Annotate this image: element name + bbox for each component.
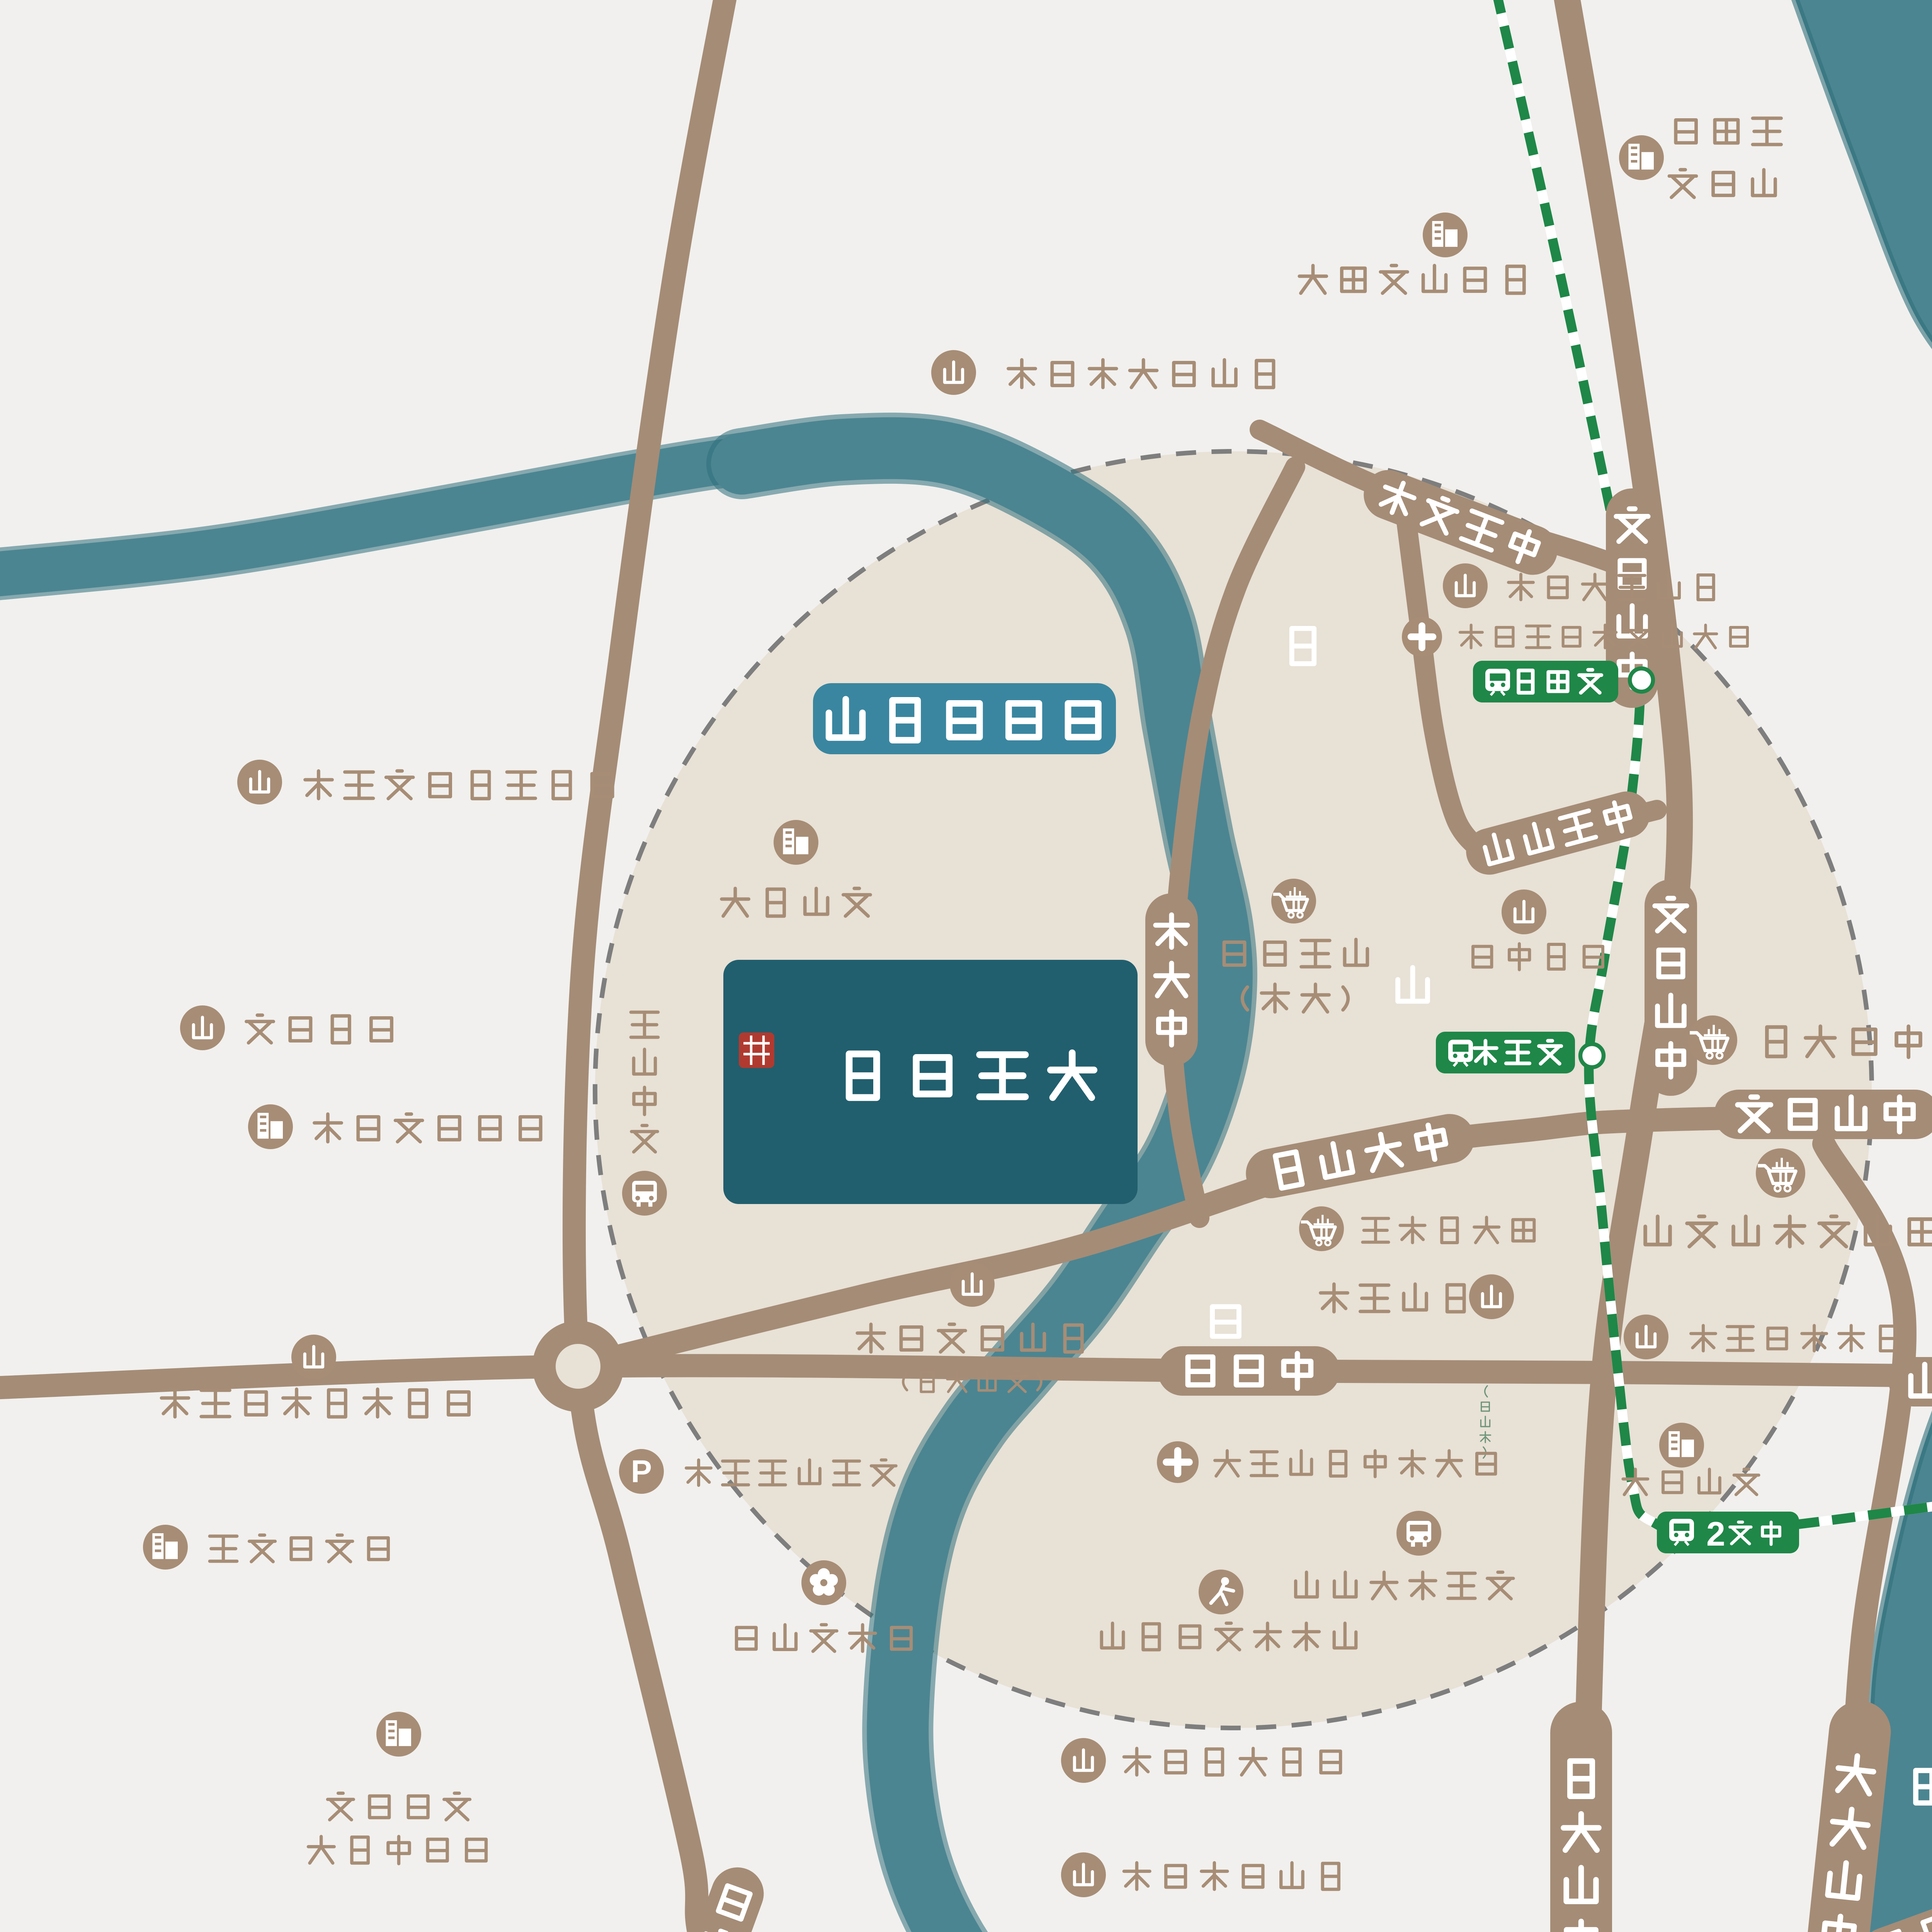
svg-text:P: P xyxy=(631,1454,652,1489)
svg-text:2: 2 xyxy=(1706,1515,1725,1553)
